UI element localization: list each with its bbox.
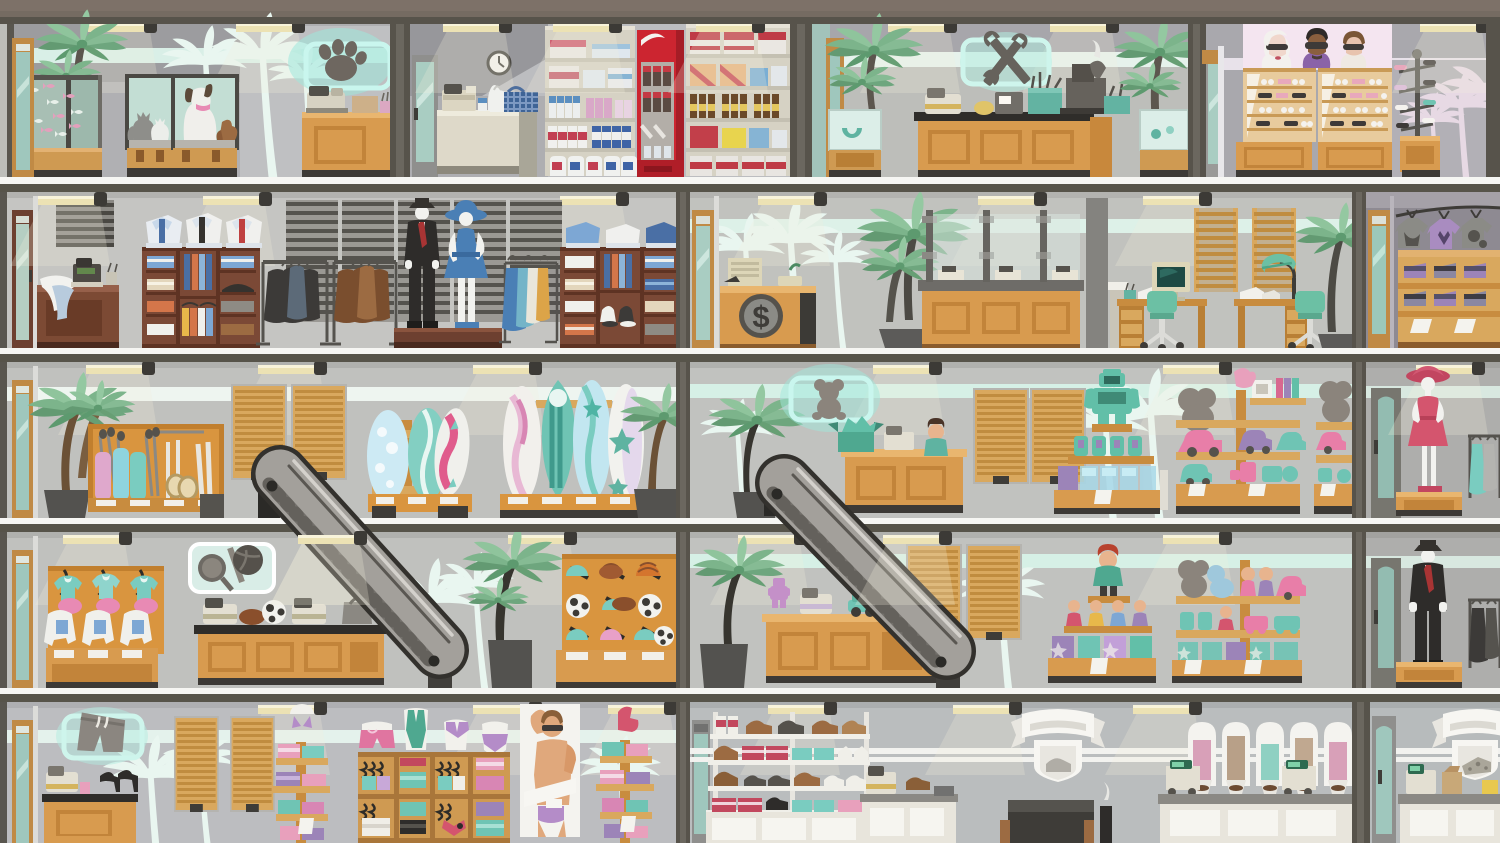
- svg-text:$: $: [752, 299, 769, 334]
